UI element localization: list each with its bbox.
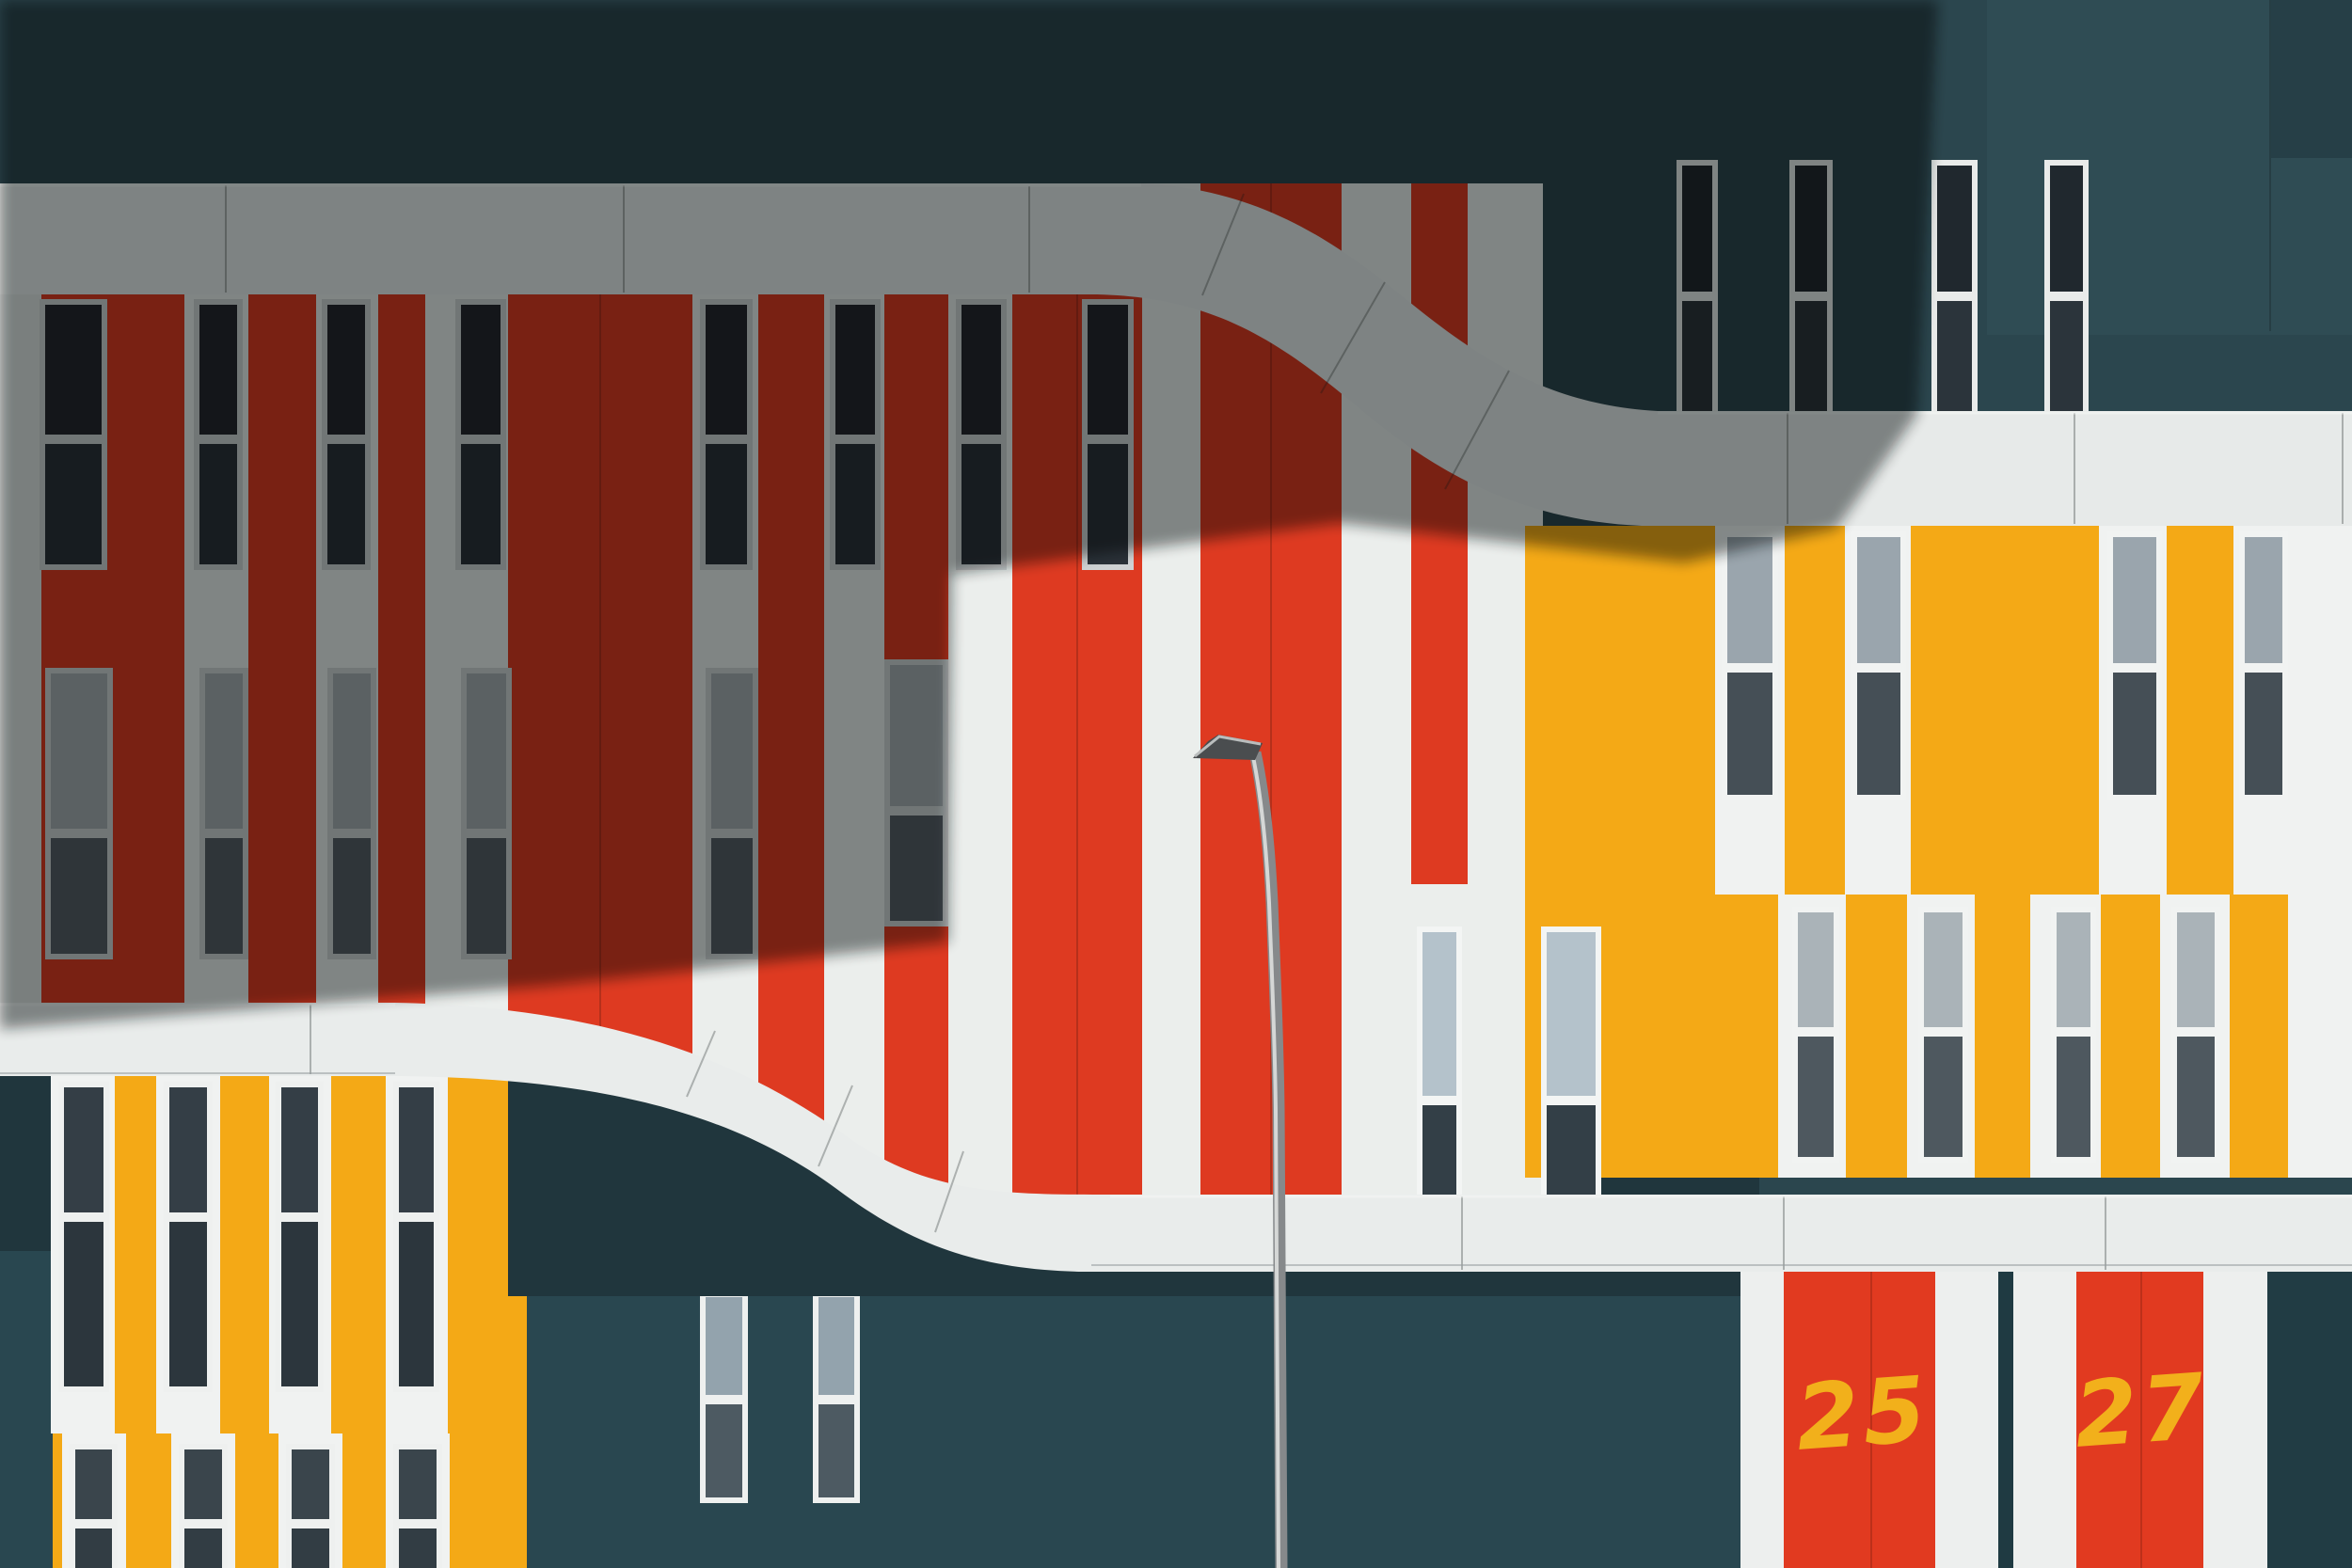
cast-shadow-overlay (0, 0, 2352, 1568)
shadow-region (0, 0, 1938, 1029)
building-facade-photo: 2527 (0, 0, 2352, 1568)
